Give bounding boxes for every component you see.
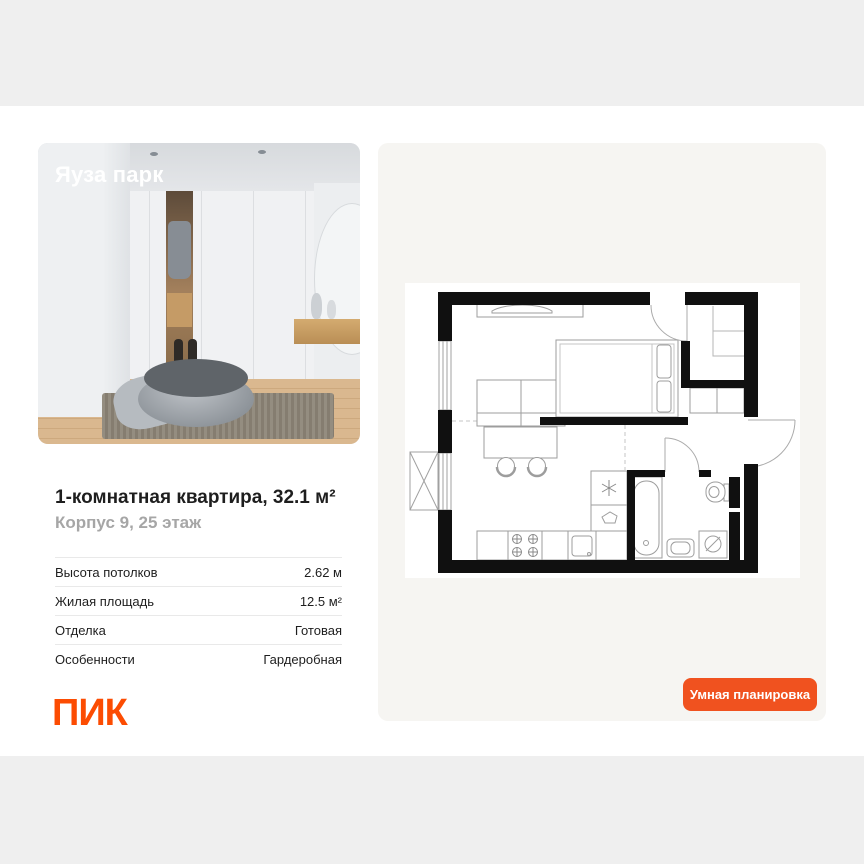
chair-icon: [528, 458, 546, 477]
param-value: Готовая: [295, 623, 342, 638]
listing-image: Яуза парк 1-комнатная квартира, 32.1 м² …: [0, 0, 864, 864]
bottom-letterbox: [0, 756, 864, 864]
photo-vase: [311, 293, 322, 319]
top-letterbox: [0, 0, 864, 106]
photo-card[interactable]: Яуза парк: [38, 143, 360, 444]
param-value: 2.62 м: [304, 565, 342, 580]
bed-icon: [556, 340, 678, 417]
bathroom-sink-icon: [667, 539, 694, 557]
param-label: Высота потолков: [55, 565, 158, 580]
hall-closet-icon: [713, 306, 744, 356]
param-label: Жилая площадь: [55, 594, 154, 609]
hall-cabinet-icon: [690, 388, 744, 413]
smart-layout-button[interactable]: Умная планировка: [683, 678, 817, 711]
ac-basket-icon: [410, 452, 438, 510]
listing-title: 1-комнатная квартира, 32.1 м²: [55, 487, 336, 509]
floor-plan: [405, 283, 800, 578]
pik-developer-logo: ПИК: [52, 692, 127, 735]
photo-pouf-cushion: [144, 359, 248, 397]
bedroom-door: [651, 305, 687, 341]
kitchen-sink-icon: [572, 536, 592, 556]
photo-niche-shelf: [167, 293, 192, 327]
params-table: Высота потолков 2.62 м Жилая площадь 12.…: [55, 557, 342, 673]
param-value: 12.5 м²: [300, 594, 342, 609]
photo-ceiling-light: [150, 152, 158, 156]
project-name-overlay: Яуза парк: [55, 162, 164, 188]
param-label: Отделка: [55, 623, 106, 638]
dining-table-icon: [484, 427, 557, 458]
param-row: Особенности Гардеробная: [55, 644, 342, 673]
bathroom-door: [665, 438, 699, 472]
photo-hanging-coat: [168, 221, 191, 279]
kitchen-counter-icon: [477, 531, 627, 560]
photo-ceiling-light: [258, 150, 266, 154]
param-row: Высота потолков 2.62 м: [55, 557, 342, 586]
param-row: Жилая площадь 12.5 м²: [55, 586, 342, 615]
photo-wood-console: [294, 319, 360, 344]
entrance-door: [748, 420, 795, 467]
param-label: Особенности: [55, 652, 135, 667]
floor-plan-paper: [405, 283, 800, 578]
param-row: Отделка Готовая: [55, 615, 342, 644]
chair-icon: [497, 458, 515, 477]
photo-vase: [327, 300, 336, 319]
floor-plan-card: Умная планировка: [378, 143, 826, 721]
listing-subtitle: Корпус 9, 25 этаж: [55, 513, 201, 533]
bathtub-icon: [631, 477, 662, 558]
param-value: Гардеробная: [263, 652, 342, 667]
toilet-icon: [706, 482, 729, 502]
fridge-icon: [591, 471, 627, 505]
washing-machine-icon: [699, 531, 727, 558]
